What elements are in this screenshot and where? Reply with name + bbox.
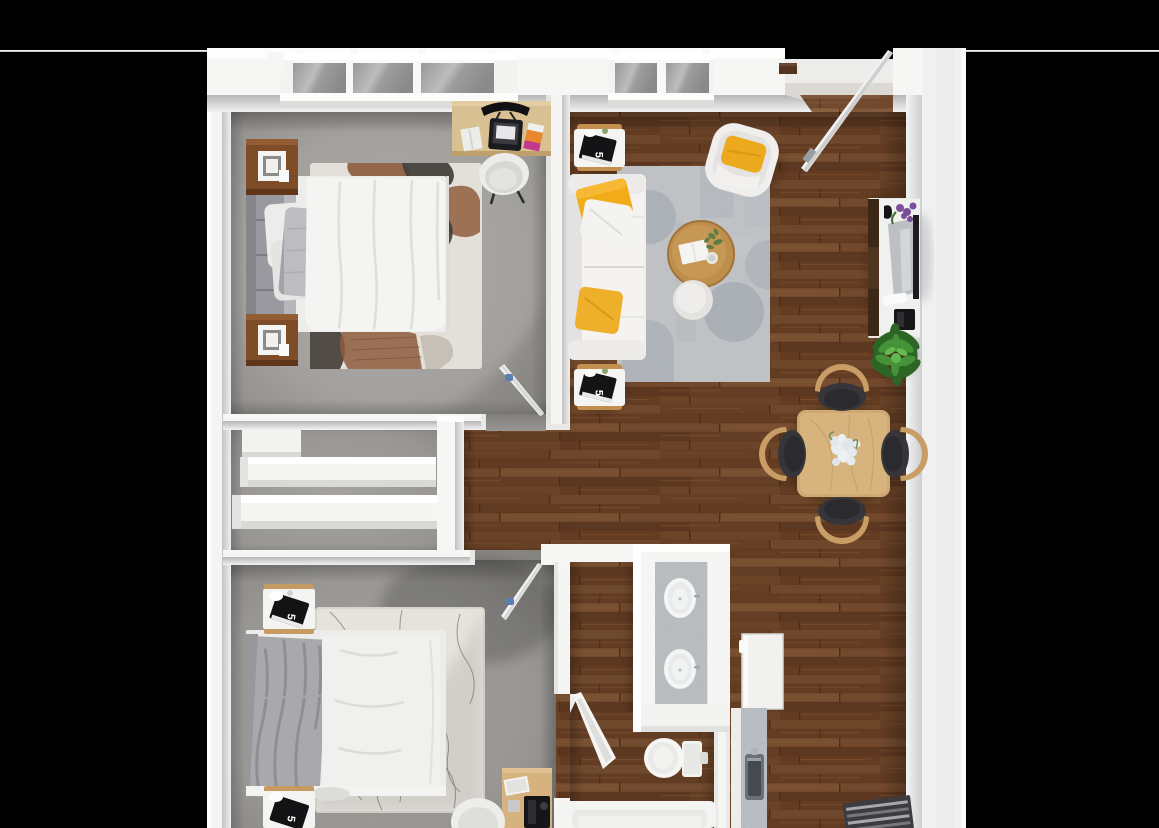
- svg-text:5: 5: [592, 390, 604, 396]
- svg-text:5: 5: [592, 152, 604, 158]
